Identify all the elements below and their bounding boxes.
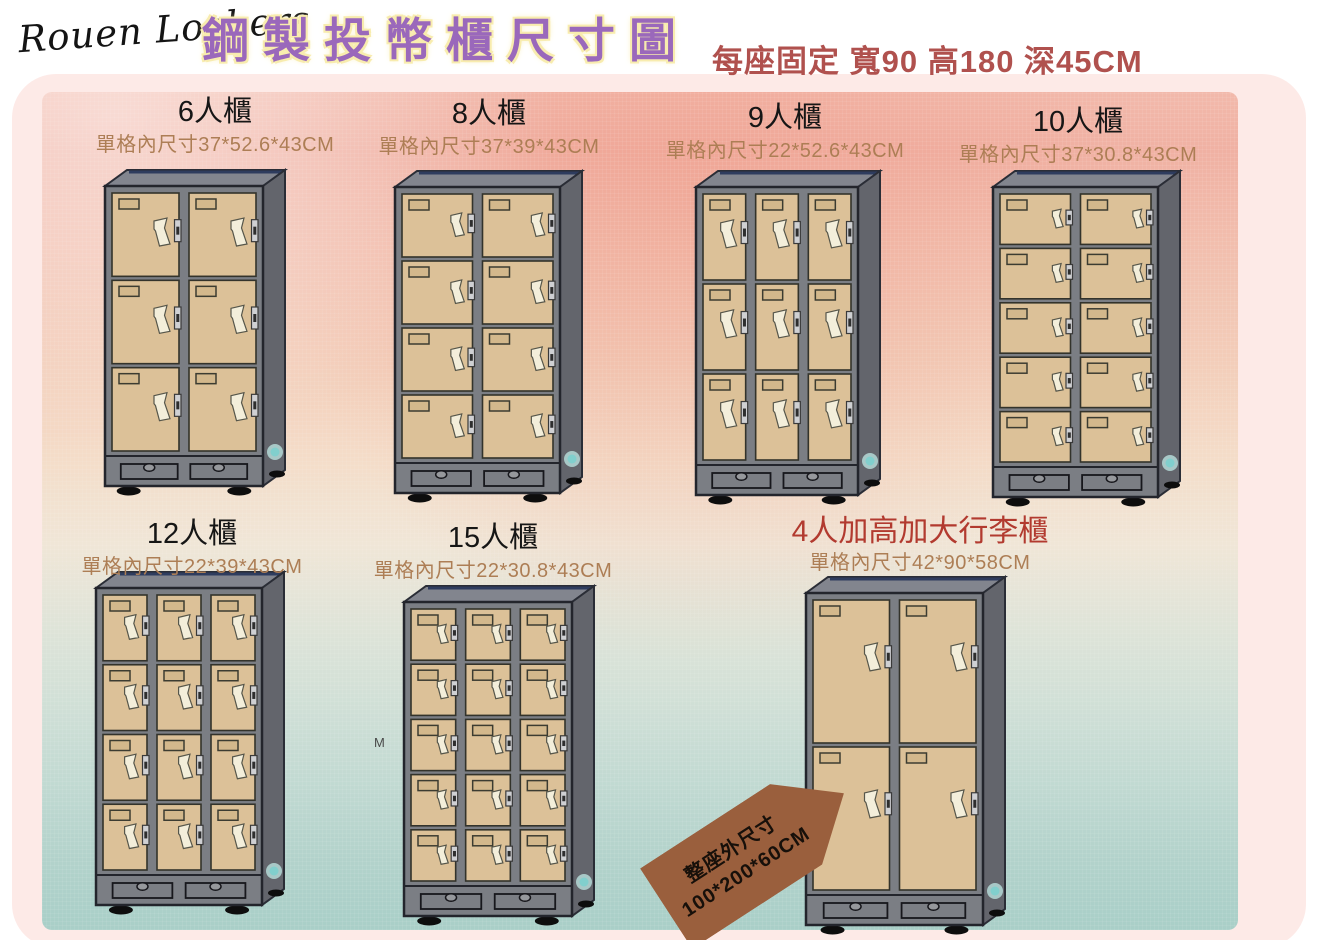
door-label-slot xyxy=(473,670,493,680)
door-label-slot xyxy=(409,334,429,344)
door-label-slot xyxy=(119,374,139,384)
locker-door xyxy=(411,830,458,881)
locker-15-art xyxy=(401,583,599,934)
door-label-slot xyxy=(110,601,130,611)
locker-15-title: 15人櫃 xyxy=(448,514,538,556)
locker-door xyxy=(103,804,149,870)
locker-door xyxy=(466,719,513,770)
door-label-slot xyxy=(473,725,493,735)
locker-foot xyxy=(1164,482,1180,489)
locker-foot xyxy=(566,478,582,485)
door-label-slot xyxy=(218,601,238,611)
door-label-slot xyxy=(473,836,493,846)
locker-foot xyxy=(269,471,285,478)
locker-side-face xyxy=(1158,171,1180,497)
door-label-slot xyxy=(490,267,510,277)
locker-door xyxy=(1000,412,1073,462)
door-label-slot xyxy=(218,810,238,820)
brand-emblem-icon xyxy=(270,867,279,876)
page: Rouen Lockers 鋼製投幣櫃尺寸圖 每座固定 寬90 高180 深45… xyxy=(0,0,1330,940)
locker-12-art xyxy=(93,569,289,923)
door-label-slot xyxy=(196,199,216,209)
locker-door xyxy=(703,284,748,370)
locker-side-face xyxy=(262,572,284,905)
locker-3d-drawing xyxy=(693,168,885,508)
drawer-knob xyxy=(446,894,457,902)
door-label-slot xyxy=(1007,254,1027,264)
locker-12-dims: 單格內尺寸22*39*43CM xyxy=(82,550,303,579)
locker-door xyxy=(211,735,257,801)
door-label-slot xyxy=(527,836,547,846)
locker-door xyxy=(402,395,475,458)
door-label-slot xyxy=(1007,200,1027,210)
locker-door xyxy=(756,284,801,370)
locker-door xyxy=(103,595,149,661)
door-label-slot xyxy=(490,401,510,411)
door-label-slot xyxy=(164,601,184,611)
drawer-knob xyxy=(144,464,155,472)
door-label-slot xyxy=(815,380,835,390)
locker-foot xyxy=(578,901,594,908)
drawer-knob xyxy=(508,471,519,479)
door-label-slot xyxy=(196,374,216,384)
locker-door xyxy=(1081,412,1154,462)
door-label-slot xyxy=(710,290,730,300)
drawer-knob xyxy=(1106,475,1117,483)
locker-door xyxy=(402,261,475,324)
drawer-knob xyxy=(137,883,148,891)
locker-10-art xyxy=(990,168,1185,515)
locker-door xyxy=(466,664,513,715)
locker-door xyxy=(520,609,567,660)
door-label-slot xyxy=(710,200,730,210)
door-label-slot xyxy=(527,670,547,680)
locker-door xyxy=(466,775,513,826)
door-label-slot xyxy=(820,753,840,763)
door-label-slot xyxy=(418,670,438,680)
door-label-slot xyxy=(1088,200,1108,210)
door-label-slot xyxy=(710,380,730,390)
locker-foot xyxy=(944,926,968,935)
door-label-slot xyxy=(418,836,438,846)
door-label-slot xyxy=(119,286,139,296)
locker-door xyxy=(466,830,513,881)
door-label-slot xyxy=(763,200,783,210)
locker-foot xyxy=(417,917,441,926)
locker-4-luggage-title: 4人加高加大行李櫃 xyxy=(792,506,1049,550)
locker-door xyxy=(703,374,748,460)
locker-6-title: 6人櫃 xyxy=(178,88,252,130)
locker-door xyxy=(1000,248,1073,298)
door-label-slot xyxy=(815,200,835,210)
brand-emblem-icon xyxy=(568,455,577,464)
locker-door xyxy=(1000,303,1073,353)
locker-door xyxy=(756,374,801,460)
locker-4-luggage-dims: 單格內尺寸42*90*58CM xyxy=(810,546,1031,575)
locker-3d-drawing xyxy=(990,168,1185,510)
door-label-slot xyxy=(763,380,783,390)
brand-emblem-icon xyxy=(271,448,280,457)
locker-foot xyxy=(708,496,732,505)
locker-door xyxy=(900,747,979,890)
locker-door xyxy=(411,719,458,770)
door-label-slot xyxy=(418,725,438,735)
locker-4-luggage-art xyxy=(803,574,1010,940)
drawer-knob xyxy=(436,471,447,479)
locker-foot xyxy=(864,480,880,487)
locker-10-dims: 單格內尺寸37*30.8*43CM xyxy=(959,138,1198,167)
door-label-slot xyxy=(218,671,238,681)
locker-door xyxy=(157,595,203,661)
locker-door xyxy=(1081,248,1154,298)
locker-door xyxy=(1081,194,1154,244)
locker-door xyxy=(103,735,149,801)
locker-foot xyxy=(821,926,845,935)
door-label-slot xyxy=(473,615,493,625)
stray-watermark: M xyxy=(374,735,385,750)
door-label-slot xyxy=(815,290,835,300)
locker-door xyxy=(1000,194,1073,244)
drawer-knob xyxy=(1034,475,1045,483)
locker-door xyxy=(756,194,801,280)
door-label-slot xyxy=(409,401,429,411)
locker-3d-drawing xyxy=(401,583,599,929)
door-label-slot xyxy=(763,290,783,300)
locker-door xyxy=(103,665,149,731)
door-label-slot xyxy=(1007,309,1027,319)
locker-12-title: 12人櫃 xyxy=(147,510,237,552)
door-label-slot xyxy=(218,741,238,751)
page-subtitle: 每座固定 寬90 高180 深45CM xyxy=(712,36,1143,81)
drawer-knob xyxy=(928,903,939,911)
locker-8-dims: 單格內尺寸37*39*43CM xyxy=(379,130,600,159)
locker-door xyxy=(1081,357,1154,407)
door-label-slot xyxy=(1088,363,1108,373)
locker-door xyxy=(157,735,203,801)
locker-door xyxy=(1000,357,1073,407)
locker-3d-drawing xyxy=(392,168,587,506)
locker-door xyxy=(189,193,258,276)
drawer-knob xyxy=(213,464,224,472)
locker-side-face xyxy=(572,586,594,916)
locker-door xyxy=(112,280,181,363)
locker-foot xyxy=(1121,498,1145,507)
locker-door xyxy=(520,830,567,881)
locker-door xyxy=(157,665,203,731)
door-label-slot xyxy=(490,334,510,344)
door-label-slot xyxy=(527,725,547,735)
locker-door xyxy=(466,609,513,660)
locker-door xyxy=(520,664,567,715)
brand-emblem-icon xyxy=(991,887,1000,896)
locker-door xyxy=(411,609,458,660)
door-label-slot xyxy=(119,199,139,209)
door-label-slot xyxy=(110,810,130,820)
locker-door xyxy=(211,595,257,661)
drawer-knob xyxy=(850,903,861,911)
door-label-slot xyxy=(907,753,927,763)
locker-3d-drawing xyxy=(102,167,290,499)
locker-door xyxy=(520,719,567,770)
door-label-slot xyxy=(409,267,429,277)
locker-door xyxy=(211,804,257,870)
locker-door xyxy=(483,194,556,257)
brand-emblem-icon xyxy=(1166,459,1175,468)
locker-door xyxy=(1081,303,1154,353)
door-label-slot xyxy=(196,286,216,296)
locker-door xyxy=(112,193,181,276)
door-label-slot xyxy=(1007,418,1027,428)
drawer-knob xyxy=(807,473,818,481)
locker-foot xyxy=(109,906,133,915)
door-label-slot xyxy=(907,606,927,616)
locker-door xyxy=(483,261,556,324)
door-label-slot xyxy=(1088,418,1108,428)
locker-door xyxy=(483,395,556,458)
locker-foot xyxy=(227,487,251,496)
locker-foot xyxy=(535,917,559,926)
door-label-slot xyxy=(418,615,438,625)
door-label-slot xyxy=(1007,363,1027,373)
door-label-slot xyxy=(527,615,547,625)
door-label-slot xyxy=(164,741,184,751)
locker-door xyxy=(411,664,458,715)
locker-door xyxy=(157,804,203,870)
brand-emblem-icon xyxy=(580,878,589,887)
locker-9-title: 9人櫃 xyxy=(748,94,822,136)
locker-side-face xyxy=(560,171,582,493)
locker-10-title: 10人櫃 xyxy=(1033,98,1123,140)
door-label-slot xyxy=(473,781,493,791)
locker-door xyxy=(703,194,748,280)
locker-foot xyxy=(268,890,284,897)
locker-door xyxy=(411,775,458,826)
locker-6-art xyxy=(102,167,290,504)
locker-side-face xyxy=(983,577,1005,925)
locker-foot xyxy=(225,906,249,915)
door-label-slot xyxy=(527,781,547,791)
locker-9-dims: 單格內尺寸22*52.6*43CM xyxy=(666,134,905,163)
locker-15-dims: 單格內尺寸22*30.8*43CM xyxy=(374,554,613,583)
locker-door xyxy=(402,328,475,391)
door-label-slot xyxy=(164,810,184,820)
locker-foot xyxy=(117,487,141,496)
locker-door xyxy=(808,194,853,280)
door-label-slot xyxy=(418,781,438,791)
locker-door xyxy=(112,368,181,451)
locker-8-title: 8人櫃 xyxy=(452,90,526,132)
door-label-slot xyxy=(1088,254,1108,264)
locker-door xyxy=(520,775,567,826)
door-label-slot xyxy=(1088,309,1108,319)
door-label-slot xyxy=(110,671,130,681)
locker-9-art xyxy=(693,168,885,513)
locker-door xyxy=(189,280,258,363)
locker-door xyxy=(808,374,853,460)
door-label-slot xyxy=(409,200,429,210)
page-title: 鋼製投幣櫃尺寸圖 xyxy=(202,2,690,71)
locker-side-face xyxy=(858,171,880,495)
locker-3d-drawing xyxy=(803,574,1010,938)
locker-door xyxy=(808,284,853,370)
door-label-slot xyxy=(164,671,184,681)
locker-6-dims: 單格內尺寸37*52.6*43CM xyxy=(96,128,335,157)
locker-foot xyxy=(408,494,432,503)
locker-foot xyxy=(989,910,1005,917)
locker-door xyxy=(900,600,979,743)
door-label-slot xyxy=(110,741,130,751)
drawer-knob xyxy=(210,883,221,891)
locker-door xyxy=(189,368,258,451)
door-label-slot xyxy=(490,200,510,210)
locker-8-art xyxy=(392,168,587,511)
locker-foot xyxy=(822,496,846,505)
locker-door xyxy=(483,328,556,391)
locker-side-face xyxy=(263,170,285,486)
locker-door xyxy=(402,194,475,257)
drawer-knob xyxy=(519,894,530,902)
door-label-slot xyxy=(820,606,840,616)
locker-foot xyxy=(523,494,547,503)
locker-3d-drawing xyxy=(93,569,289,918)
locker-door xyxy=(813,600,892,743)
brand-emblem-icon xyxy=(866,457,875,466)
locker-door xyxy=(211,665,257,731)
drawer-knob xyxy=(736,473,747,481)
